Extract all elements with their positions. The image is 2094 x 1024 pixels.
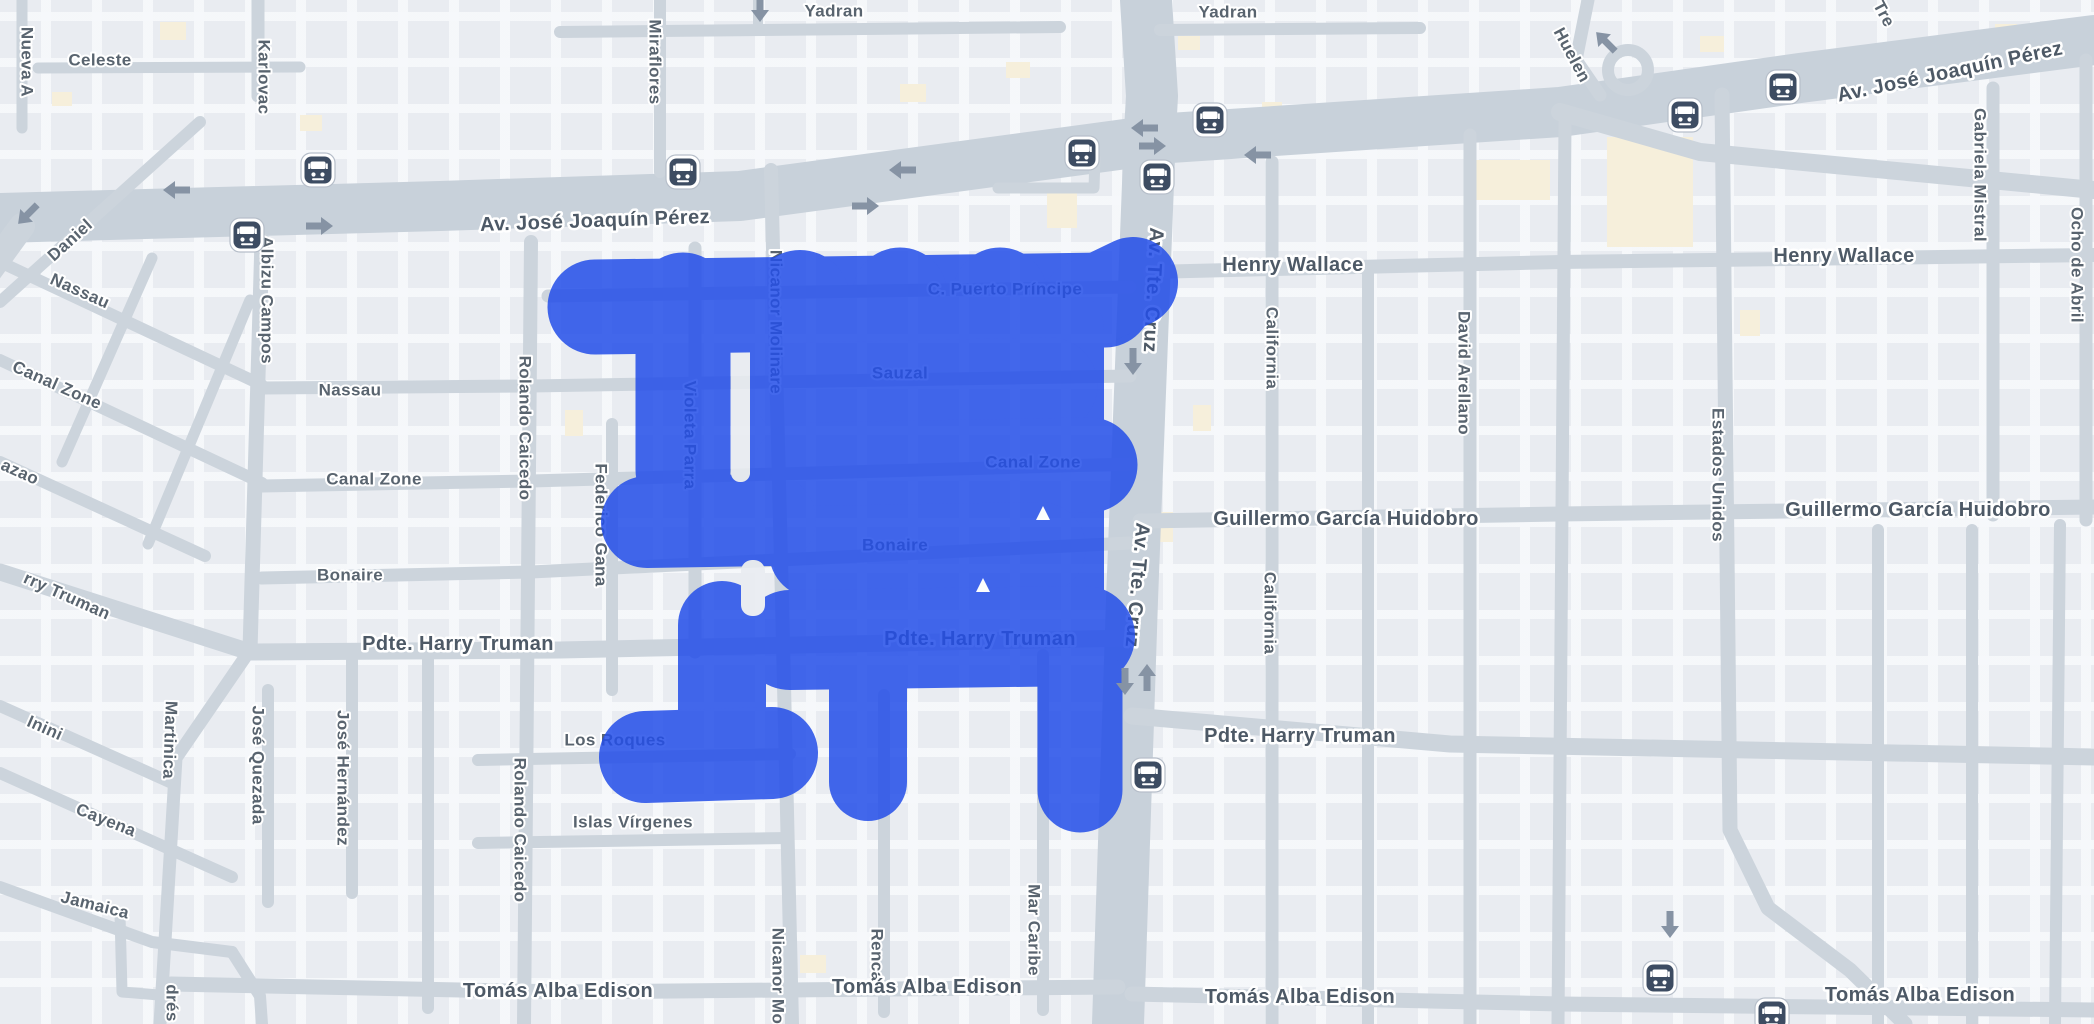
cream-building bbox=[52, 92, 72, 106]
bus-stop-icon[interactable] bbox=[230, 218, 264, 252]
map-svg-layer: CelesteYadranYadranNassauCanal ZoneBonai… bbox=[0, 0, 2094, 1024]
bus-icon-bumper bbox=[1142, 783, 1154, 785]
highlight-stroke bbox=[790, 636, 1085, 640]
bus-icon-mirror-left bbox=[1200, 114, 1202, 120]
street-label: Tomás Alba Edison bbox=[463, 980, 653, 1002]
street-label: Nicanor Mo bbox=[769, 928, 788, 1024]
bus-icon-light-right bbox=[1212, 122, 1216, 126]
cream-building bbox=[565, 410, 583, 436]
street-label: Renca bbox=[868, 928, 887, 981]
bus-icon-light-left bbox=[1765, 1017, 1769, 1021]
bus-icon-bumper bbox=[241, 243, 253, 245]
bus-stop-icon[interactable] bbox=[1131, 758, 1165, 792]
bus-icon-window bbox=[1141, 767, 1156, 775]
bus-icon-window bbox=[1776, 79, 1791, 87]
street-label: Nueva A bbox=[18, 27, 37, 97]
bus-icon-mirror-right bbox=[1165, 171, 1167, 177]
bus-icon-window bbox=[1653, 970, 1668, 978]
bus-icon-light-right bbox=[1687, 117, 1691, 121]
street-label: Estados Unidos bbox=[1709, 408, 1728, 542]
street-label: drés bbox=[163, 984, 182, 1022]
drawn-highlight-region bbox=[595, 282, 1133, 790]
bus-icon-mirror-right bbox=[255, 229, 257, 235]
bus-icon-mirror-left bbox=[673, 166, 675, 172]
street-label: Ocho de Abril bbox=[2068, 207, 2087, 323]
bus-icon-light-left bbox=[311, 172, 315, 176]
bus-icon-light-left bbox=[1075, 155, 1079, 159]
bus-icon-window bbox=[676, 164, 691, 172]
bus-icon-mirror-right bbox=[1156, 769, 1158, 775]
map-canvas[interactable]: CelesteYadranYadranNassauCanal ZoneBonai… bbox=[0, 0, 2094, 1024]
street-road bbox=[0, 706, 172, 783]
street-label: Tre bbox=[1869, 0, 1898, 30]
bus-icon-mirror-right bbox=[326, 164, 328, 170]
street-label: José Quezada bbox=[249, 705, 268, 824]
bus-icon-window bbox=[1150, 169, 1165, 177]
cream-building bbox=[1473, 160, 1550, 200]
bus-icon-mirror-right bbox=[1218, 114, 1220, 120]
street-label: Guillermo García Huidobro bbox=[1213, 508, 1479, 530]
bus-icon-window bbox=[1765, 1007, 1780, 1015]
cream-building bbox=[1006, 62, 1030, 78]
bus-icon-mirror-right bbox=[1090, 147, 1092, 153]
street-label: Albizu Campos bbox=[258, 236, 277, 364]
street-label: Cayena bbox=[73, 799, 139, 840]
cream-building bbox=[1178, 36, 1200, 50]
street-label: Tomás Alba Edison bbox=[1205, 986, 1395, 1008]
bus-icon-window bbox=[1075, 145, 1090, 153]
cream-building bbox=[900, 84, 926, 102]
street-label: Islas Vírgenes bbox=[573, 813, 693, 832]
bus-stop-icon[interactable] bbox=[1193, 103, 1227, 137]
bus-stop-icon[interactable] bbox=[1766, 70, 1800, 104]
bus-icon-light-right bbox=[1150, 777, 1154, 781]
cream-building bbox=[800, 955, 826, 973]
one-way-arrow-icon bbox=[1661, 911, 1679, 938]
cream-building bbox=[160, 22, 186, 40]
bus-icon-mirror-left bbox=[1138, 769, 1140, 775]
bus-icon-bumper bbox=[1151, 185, 1163, 187]
bus-icon-bumper bbox=[1076, 161, 1088, 163]
street-label: Gabriela Mistral bbox=[1971, 108, 1990, 242]
bus-icon-light-left bbox=[1653, 980, 1657, 984]
street-label: Canal Zone bbox=[326, 470, 422, 489]
bus-stop-icon[interactable] bbox=[1643, 961, 1677, 995]
street-label: Pdte. Harry Truman bbox=[1204, 725, 1396, 747]
bus-icon-mirror-left bbox=[1675, 109, 1677, 115]
bus-stop-icon[interactable] bbox=[1065, 136, 1099, 170]
bus-icon-light-right bbox=[1774, 1017, 1778, 1021]
bus-icon-mirror-left bbox=[1773, 81, 1775, 87]
street-label: José Hernández bbox=[334, 710, 353, 846]
street-label: Henry Wallace bbox=[1773, 245, 1914, 267]
bus-icon-light-left bbox=[1776, 89, 1780, 93]
street-road bbox=[1558, 122, 1565, 1024]
bus-icon-light-right bbox=[320, 172, 324, 176]
street-label: Rolando Caicedo bbox=[516, 356, 535, 501]
bus-icon-mirror-left bbox=[237, 229, 239, 235]
street-label: Yadran bbox=[804, 2, 863, 21]
bus-icon-light-right bbox=[249, 237, 253, 241]
street-road bbox=[1160, 28, 1420, 30]
bus-stop-icon[interactable] bbox=[1755, 998, 1789, 1024]
highlight-stroke bbox=[645, 753, 772, 757]
street-label: Inini bbox=[24, 712, 65, 744]
bus-icon-window bbox=[311, 162, 326, 170]
street-label: azao bbox=[0, 455, 42, 488]
bus-icon-light-left bbox=[1141, 777, 1145, 781]
bus-icon-mirror-left bbox=[1762, 1009, 1764, 1015]
bus-icon-bumper bbox=[1679, 123, 1691, 125]
bus-icon-mirror-right bbox=[1780, 1009, 1782, 1015]
bus-icon-window bbox=[1678, 107, 1693, 115]
street-label: Pdte. Harry Truman bbox=[362, 633, 554, 655]
bus-icon-bumper bbox=[312, 178, 324, 180]
bus-stop-icon[interactable] bbox=[1668, 98, 1702, 132]
bus-icon-light-left bbox=[1150, 179, 1154, 183]
bus-icon-mirror-right bbox=[1668, 972, 1670, 978]
street-label: Tomás Alba Edison bbox=[1825, 984, 2015, 1006]
highlight-stroke bbox=[647, 520, 770, 522]
street-label: Celeste bbox=[68, 51, 131, 70]
cream-building bbox=[1193, 405, 1211, 431]
bus-stop-icon[interactable] bbox=[1140, 160, 1174, 194]
bus-icon-light-left bbox=[240, 237, 244, 241]
street-label: Martinica bbox=[159, 701, 181, 780]
highlight-stroke bbox=[815, 548, 1040, 552]
street-label: Miraflores bbox=[646, 19, 665, 104]
highlight-gap bbox=[731, 356, 750, 482]
bus-icon-light-right bbox=[1785, 89, 1789, 93]
bus-icon-mirror-right bbox=[1693, 109, 1695, 115]
street-label: Rolando Caicedo bbox=[511, 758, 530, 903]
cream-building bbox=[1700, 36, 1724, 52]
bus-stop-icon[interactable] bbox=[666, 155, 700, 189]
bus-icon-window bbox=[1203, 112, 1218, 120]
bus-icon-bumper bbox=[1777, 95, 1789, 97]
bus-icon-light-right bbox=[1662, 980, 1666, 984]
street-road bbox=[560, 27, 1060, 32]
bus-icon-light-left bbox=[1678, 117, 1682, 121]
bus-icon-bumper bbox=[1654, 986, 1666, 988]
street-label: California bbox=[1263, 307, 1282, 390]
bus-icon-mirror-left bbox=[1147, 171, 1149, 177]
highlight-stroke bbox=[800, 465, 1090, 470]
bus-icon-light-right bbox=[1084, 155, 1088, 159]
bus-icon-mirror-left bbox=[308, 164, 310, 170]
highlight-gap bbox=[741, 560, 765, 616]
street-label: Guillermo García Huidobro bbox=[1785, 499, 2051, 521]
bus-icon-mirror-right bbox=[1791, 81, 1793, 87]
bus-icon-bumper bbox=[1204, 128, 1216, 130]
cream-building bbox=[300, 115, 322, 131]
road-loop bbox=[1608, 50, 1648, 90]
street-label: Mar Caribe bbox=[1025, 884, 1044, 976]
street-label: Karlovac bbox=[255, 39, 274, 114]
street-label: Bonaire bbox=[317, 566, 383, 585]
street-label: Nassau bbox=[319, 381, 382, 400]
cream-building bbox=[1740, 310, 1760, 336]
street-label: David Arellano bbox=[1455, 311, 1474, 435]
bus-icon-window bbox=[240, 227, 255, 235]
bus-icon-light-right bbox=[1159, 179, 1163, 183]
highlight-stroke bbox=[800, 385, 1050, 390]
bus-icon-mirror-left bbox=[1650, 972, 1652, 978]
street-label: Henry Wallace bbox=[1222, 254, 1363, 276]
street-road bbox=[2055, 525, 2060, 1024]
bus-icon-mirror-right bbox=[691, 166, 693, 172]
street-label: Yadran bbox=[1198, 3, 1257, 22]
bus-icon-mirror-left bbox=[1072, 147, 1074, 153]
bus-icon-bumper bbox=[677, 180, 689, 182]
bus-icon-light-left bbox=[676, 174, 680, 178]
street-label: Tomás Alba Edison bbox=[832, 976, 1022, 998]
bus-stop-icon[interactable] bbox=[301, 153, 335, 187]
bus-icon-light-left bbox=[1203, 122, 1207, 126]
street-label: California bbox=[1261, 572, 1280, 655]
bus-icon-light-right bbox=[685, 174, 689, 178]
